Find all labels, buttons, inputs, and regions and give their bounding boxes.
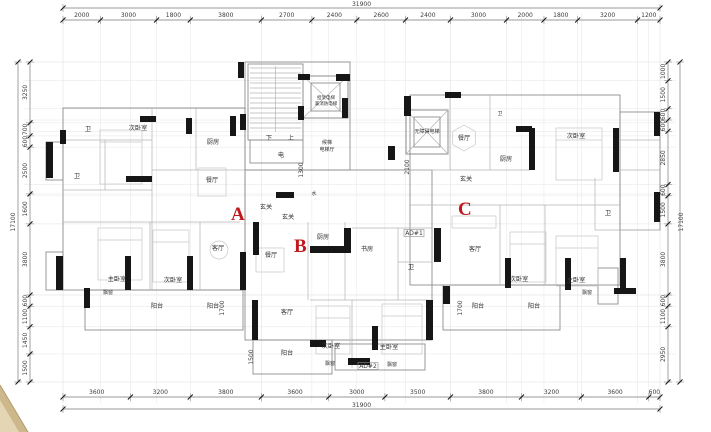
unit-marker-A: A (231, 204, 245, 225)
dim-label: 3000 (121, 12, 136, 19)
dim-label: 1200 (641, 12, 656, 19)
room-label: 客厅 (469, 245, 481, 253)
room-label: 下 (266, 135, 272, 142)
room-label: 卫 (497, 111, 502, 117)
room-label: 卫 (85, 126, 91, 133)
room-label: 玄关 (260, 203, 272, 211)
room-label: 客厅 (212, 244, 224, 252)
dim-label: 1500 (660, 202, 667, 217)
floorplan-canvas: 2000300018003800270024002600240030002000… (0, 0, 711, 432)
corner-decoration (0, 385, 28, 432)
floorplan-drawing: 2000300018003800270024002600240030002000… (0, 0, 711, 432)
dim-label: 3600 (607, 389, 622, 396)
dim-label: 17100 (678, 212, 685, 231)
dim-label: 1600 (22, 201, 29, 216)
internal-dim-label: 1500 (248, 349, 255, 364)
room-label: 次卧室 (164, 276, 183, 284)
dim-label: 3800 (218, 389, 233, 396)
internal-dim-label: 1700 (219, 300, 226, 315)
room-label: 阳台 (528, 302, 540, 310)
dim-label: 600 (660, 120, 667, 132)
room-label: 厨房 (500, 155, 512, 163)
room-label: 次卧室 (510, 275, 529, 283)
room-label: 飘窗 (325, 360, 335, 367)
room-label: 担架电梯 (317, 94, 335, 101)
room-label: 厨房 (317, 233, 329, 241)
room-label: 次卧室 (129, 124, 148, 132)
room-label: 客厅 (281, 308, 293, 316)
dim-label: 600 (660, 295, 667, 307)
room-label: 上 (288, 134, 294, 142)
room-label: 飘窗 (582, 289, 592, 296)
internal-dim-label: 2100 (404, 159, 411, 174)
room-label: 水 (311, 190, 316, 197)
room-label: 候梯 (322, 139, 332, 146)
duct-label: AD#2 (359, 363, 377, 370)
room-label: 电梯厅 (319, 146, 334, 153)
room-label: 阳台 (151, 302, 163, 310)
dim-label: 1800 (166, 12, 181, 19)
dim-label: 31900 (352, 1, 371, 8)
dim-label: 17100 (10, 212, 17, 231)
dim-label: 3800 (218, 12, 233, 19)
dim-label: 2600 (374, 12, 389, 19)
duct-label: AD#1 (405, 230, 423, 237)
room-label: 餐厅 (458, 134, 470, 142)
dim-label: 1100 (660, 309, 667, 324)
dim-label: 3800 (22, 252, 29, 267)
dim-label: 600 (660, 184, 667, 196)
dim-label: 1000 (660, 64, 667, 79)
room-label: 阳台 (472, 302, 484, 310)
room-label: 主卧室 (567, 276, 586, 284)
room-label: 卫 (605, 210, 611, 217)
dim-label: 3250 (22, 85, 29, 100)
dim-label: 3600 (287, 389, 302, 396)
dim-label: 3000 (349, 389, 364, 396)
structural-walls (46, 62, 660, 365)
dim-label: 1100 (22, 309, 29, 324)
dim-label: 2950 (660, 347, 667, 362)
dim-label: 31900 (352, 402, 371, 409)
dim-label: 2400 (420, 12, 435, 19)
dim-label: 3000 (471, 12, 486, 19)
room-label: 玄关 (282, 213, 294, 221)
dim-label: 600 (22, 136, 29, 148)
dim-label: 2850 (660, 150, 667, 165)
dim-label: 1450 (22, 333, 29, 348)
dim-label: 2500 (22, 163, 29, 178)
dim-label: 1500 (22, 360, 29, 375)
dim-label: 3600 (89, 389, 104, 396)
dim-label: 2400 (327, 12, 342, 19)
room-label: 厨房 (207, 138, 219, 146)
room-label: 餐厅 (265, 251, 277, 259)
dim-label: 1500 (660, 87, 667, 102)
room-label: 兼消防电梯 (315, 100, 338, 107)
room-label: 阳台 (281, 349, 293, 357)
dim-label: 3800 (478, 389, 493, 396)
dim-label: 600 (22, 295, 29, 307)
dim-label: 700 (22, 123, 29, 135)
room-label: 主卧室 (108, 275, 127, 283)
room-label: 玄关 (460, 175, 472, 183)
dim-label: 600 (649, 389, 661, 396)
unit-marker-C: C (458, 199, 472, 220)
room-label: 书房 (361, 245, 373, 253)
room-label: 卫 (74, 173, 80, 180)
dim-label: 3800 (660, 252, 667, 267)
room-label: 主卧室 (380, 343, 399, 351)
unit-marker-B: B (294, 236, 307, 257)
room-label: 次卧室 (322, 342, 341, 350)
room-label: 电 (278, 151, 284, 159)
room-label: 阳台 (207, 302, 219, 310)
dim-label: 3500 (410, 389, 425, 396)
dim-label: 2000 (518, 12, 533, 19)
dim-label: 1800 (553, 12, 568, 19)
internal-dim-label: 1700 (457, 300, 464, 315)
dim-label: 2700 (279, 12, 294, 19)
dim-label: 600 (660, 108, 667, 120)
dim-label: 3200 (544, 389, 559, 396)
internal-dim-label: 1300 (298, 162, 305, 177)
dim-label: 3200 (153, 389, 168, 396)
room-label: 餐厅 (206, 176, 218, 184)
dimension-strips: 2000300018003800270024002600240030002000… (10, 1, 685, 413)
dim-label: 3200 (600, 12, 615, 19)
room-label: 卫 (408, 264, 414, 271)
room-label: 飘窗 (103, 289, 113, 296)
room-label: 飘窗 (387, 361, 397, 368)
room-label: 次卧室 (567, 132, 586, 140)
room-label: 无障碍电梯 (414, 128, 439, 135)
dim-label: 2000 (74, 12, 89, 19)
